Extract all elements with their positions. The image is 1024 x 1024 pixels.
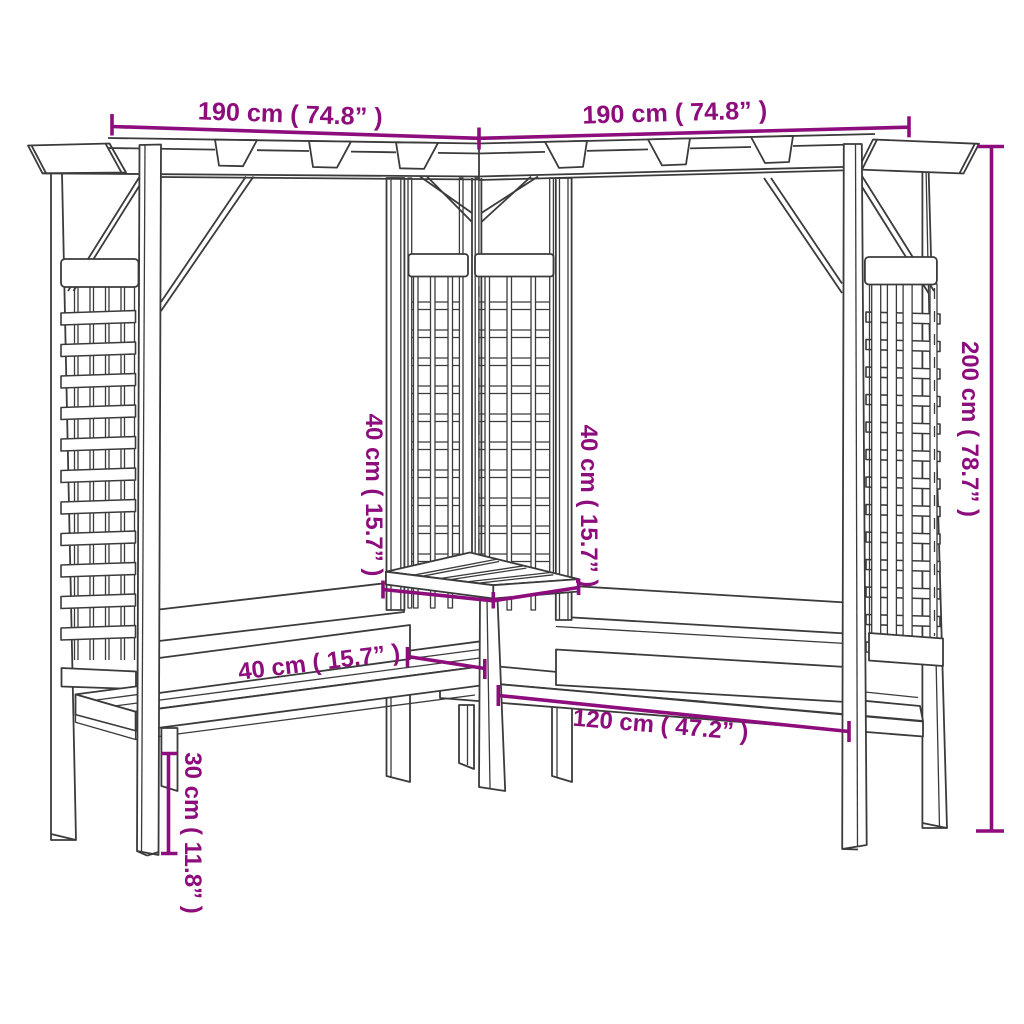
svg-text:190 cm ( 74.8” ): 190 cm ( 74.8” ) bbox=[582, 96, 768, 129]
svg-text:30 cm ( 11.8” ): 30 cm ( 11.8” ) bbox=[179, 752, 206, 913]
svg-text:40 cm ( 15.7” ): 40 cm ( 15.7” ) bbox=[360, 414, 387, 577]
svg-text:40 cm ( 15.7” ): 40 cm ( 15.7” ) bbox=[575, 425, 602, 588]
svg-text:200 cm ( 78.7” ): 200 cm ( 78.7” ) bbox=[956, 341, 983, 517]
